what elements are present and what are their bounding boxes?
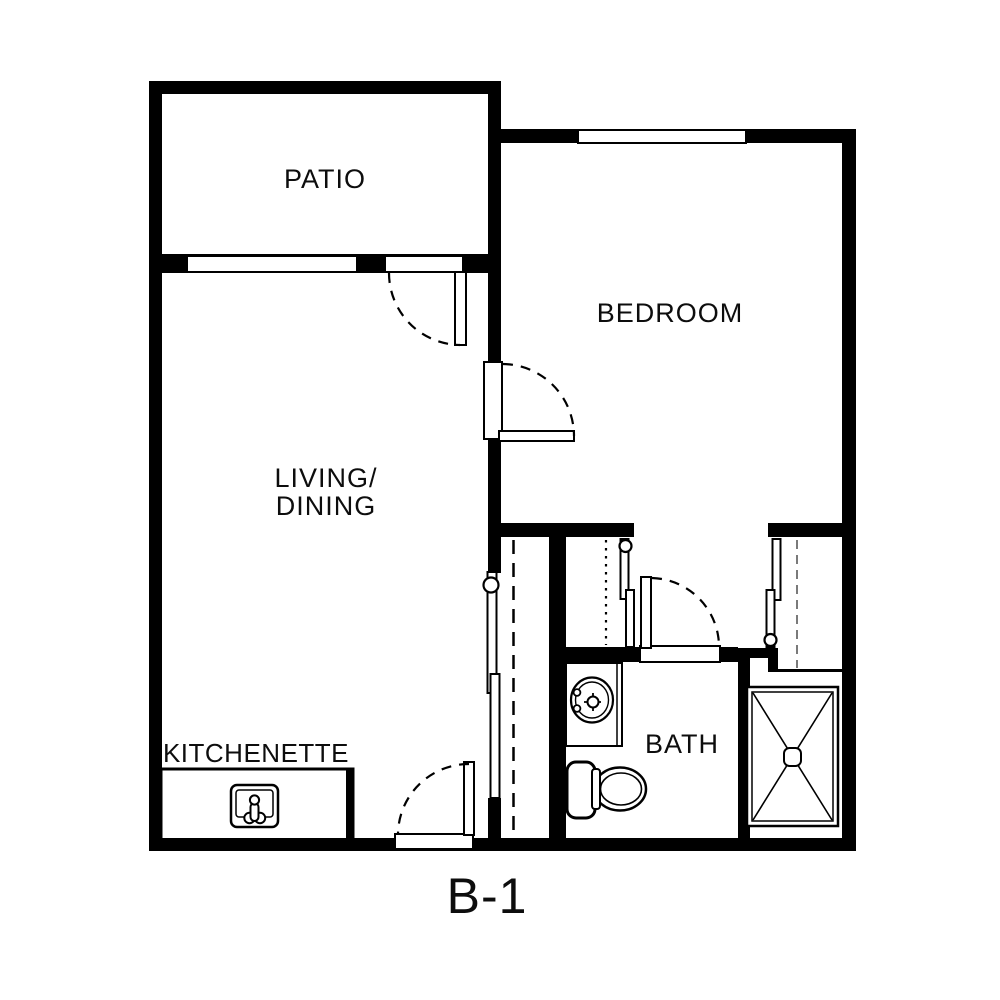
wall-closet-corner-stub bbox=[738, 648, 778, 658]
floor-plan: PATIO BEDROOM LIVING/ DINING KITCHENETTE… bbox=[0, 0, 1000, 1000]
living-dining-label-line2: DINING bbox=[276, 491, 377, 521]
bedroom-door-threshold bbox=[484, 362, 502, 439]
wall-patio-top bbox=[149, 81, 501, 94]
wall-closet-bath-left bbox=[549, 523, 566, 845]
closet-door-knob-icon bbox=[620, 540, 632, 552]
bedroom-label: BEDROOM bbox=[597, 298, 744, 328]
patio-door-threshold bbox=[385, 256, 463, 272]
wall-bath-top-right bbox=[720, 647, 738, 662]
shower-icon bbox=[747, 687, 838, 826]
entry-door-threshold bbox=[395, 834, 473, 849]
bathroom-sink-icon bbox=[566, 663, 622, 746]
floor-plan-drawing: PATIO BEDROOM LIVING/ DINING KITCHENETTE… bbox=[0, 0, 1000, 1000]
bath-label: BATH bbox=[645, 729, 719, 759]
wall-center-vertical-middle bbox=[488, 439, 501, 573]
closet-door-knob-icon bbox=[765, 634, 777, 646]
wall-center-vertical-lower bbox=[488, 798, 501, 841]
living-dining-label-line1: LIVING/ bbox=[274, 463, 377, 493]
wall-right-exterior bbox=[842, 129, 856, 851]
wall-bedroom-bottom-right bbox=[768, 523, 842, 537]
wall-center-vertical-upper bbox=[488, 81, 501, 363]
unit-label: B-1 bbox=[447, 868, 528, 924]
bedroom-window bbox=[578, 130, 746, 143]
wall-bedroom-bottom-left bbox=[501, 523, 634, 537]
kitchen-sink-icon bbox=[231, 785, 278, 827]
closet-floor-line bbox=[768, 669, 842, 672]
wall-left-exterior bbox=[149, 81, 162, 851]
wall-bath-top-left bbox=[549, 647, 642, 662]
closet-door-knob-icon bbox=[484, 578, 499, 593]
patio-window bbox=[187, 256, 357, 272]
wall-bottom-exterior bbox=[149, 838, 856, 851]
kitchenette-label: KITCHENETTE bbox=[163, 738, 349, 768]
patio-label: PATIO bbox=[284, 164, 366, 194]
